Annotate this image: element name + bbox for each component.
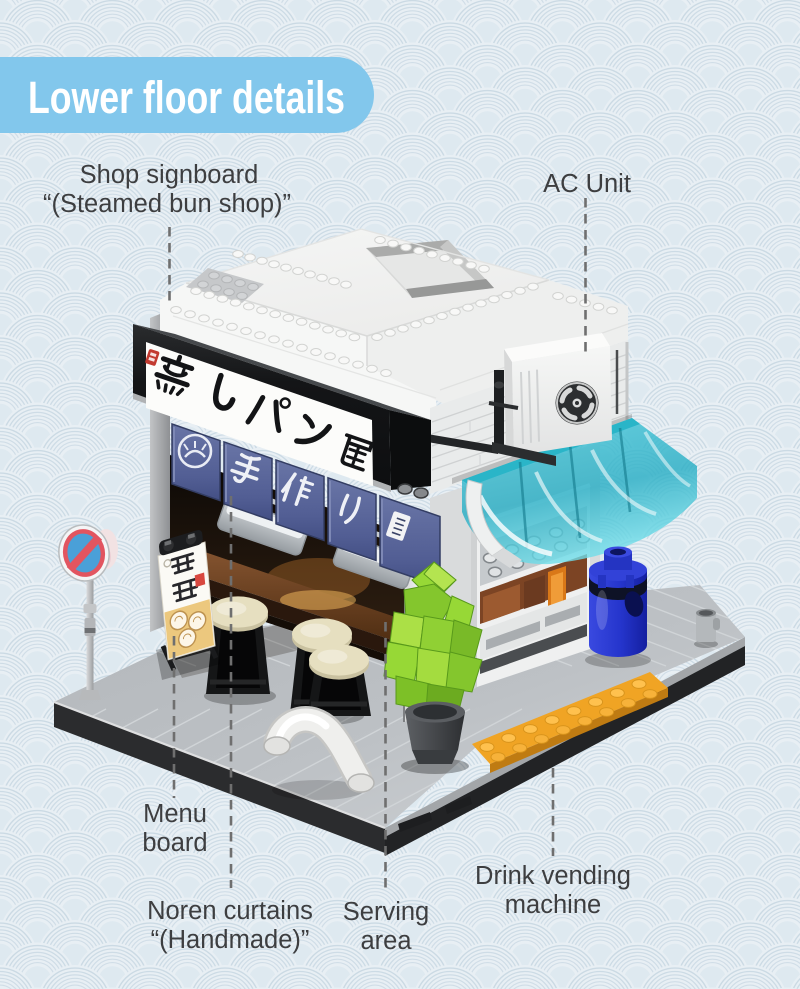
svg-text:machine: machine <box>505 891 601 919</box>
svg-text:“(Steamed bun shop)”: “(Steamed bun shop)” <box>43 190 291 218</box>
svg-text:AC Unit: AC Unit <box>543 170 631 198</box>
svg-text:Shop signboard: Shop signboard <box>80 161 259 189</box>
svg-text:Noren curtains: Noren curtains <box>147 897 313 925</box>
svg-text:Lower floor details: Lower floor details <box>28 72 345 123</box>
svg-text:board: board <box>142 829 207 857</box>
svg-text:area: area <box>360 927 412 955</box>
svg-text:Drink vending: Drink vending <box>475 862 631 890</box>
svg-text:“(Handmade)”: “(Handmade)” <box>151 926 310 954</box>
svg-text:Serving: Serving <box>343 898 429 926</box>
svg-text:Menu: Menu <box>143 800 207 828</box>
